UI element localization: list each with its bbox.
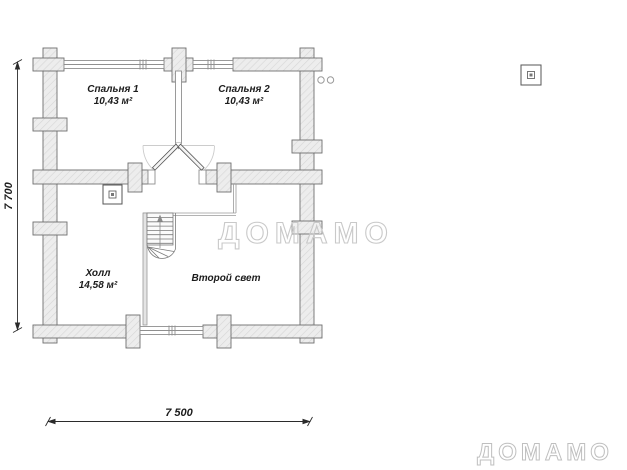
wall-top-left (33, 58, 64, 71)
wall-left (43, 48, 57, 343)
log-end-middle-2 (217, 163, 231, 192)
stair-parapet (143, 213, 147, 325)
room-name: Второй свет (192, 273, 261, 285)
watermark-corner: ДОМАМО (477, 439, 613, 467)
log-end-right-1 (292, 140, 322, 153)
door-leaf-right (178, 144, 204, 170)
room-label-bedroom2: Спальня 2 10,43 м² (218, 84, 269, 107)
stair-winder (147, 245, 176, 259)
room-name: Холл (79, 268, 118, 280)
log-end-bottom-2 (217, 315, 231, 348)
log-end-middle-1 (128, 163, 142, 192)
second-light-boundary (143, 184, 236, 325)
window-bottom (140, 326, 203, 336)
door-swing-left (143, 146, 153, 170)
wall-top-right (233, 58, 322, 71)
room-label-hall: Холл 14,58 м² (79, 268, 118, 291)
dimension-value-horizontal: 7 500 (165, 407, 193, 419)
chimney-top-icon (521, 65, 541, 85)
log-end-bottom-1 (126, 315, 140, 348)
dimension-value-vertical: 7 700 (3, 182, 15, 210)
watermark-center: ДОМАМО (218, 217, 394, 251)
room-label-bedroom1: Спальня 1 10,43 м² (87, 84, 138, 107)
window-top-2 (193, 60, 233, 70)
room-area: 14,58 м² (79, 280, 118, 292)
floor-plan-page: Спальня 1 10,43 м² Спальня 2 10,43 м² Хо… (0, 0, 627, 470)
vent-holes-icon (318, 77, 334, 83)
wall-bottom-left (33, 325, 140, 338)
room-area: 10,43 м² (218, 96, 269, 108)
door-leaf-left (153, 144, 179, 170)
log-end-left-2 (33, 222, 67, 235)
room-area: 10,43 м² (87, 96, 138, 108)
log-end-left-1 (33, 118, 67, 131)
window-top-1 (64, 60, 164, 70)
staircase (147, 213, 176, 259)
chimney-icon (103, 185, 122, 204)
room-name: Спальня 1 (87, 84, 138, 96)
wall-right (300, 48, 314, 343)
room-name: Спальня 2 (218, 84, 269, 96)
room-label-second-light: Второй свет (192, 273, 261, 285)
door-swing-right (205, 146, 215, 170)
